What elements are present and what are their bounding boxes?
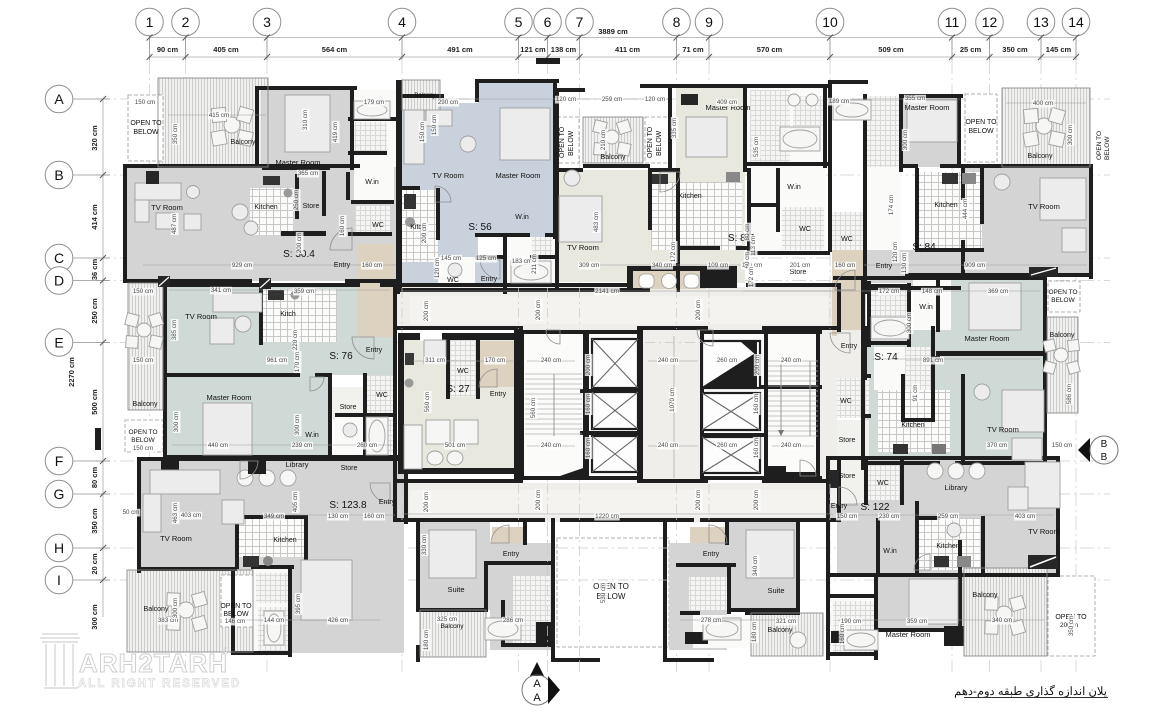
svg-text:240 cm: 240 cm — [658, 357, 678, 364]
svg-text:Store: Store — [303, 203, 320, 210]
svg-text:259 cm: 259 cm — [602, 96, 622, 103]
svg-text:4: 4 — [398, 14, 406, 30]
svg-text:179 cm: 179 cm — [364, 99, 384, 106]
svg-text:160 cm: 160 cm — [839, 624, 846, 644]
svg-text:TV Room: TV Room — [567, 243, 599, 252]
svg-text:WC: WC — [877, 480, 889, 487]
svg-text:146 cm: 146 cm — [225, 618, 245, 625]
svg-text:TV Room: TV Room — [1028, 527, 1060, 536]
svg-text:400 cm: 400 cm — [1033, 100, 1053, 107]
svg-text:200 cm: 200 cm — [535, 490, 542, 510]
svg-text:250 cm: 250 cm — [293, 190, 300, 210]
svg-text:Kitchen: Kitchen — [678, 193, 701, 200]
svg-text:TV Room: TV Room — [151, 203, 183, 212]
svg-text:Balcony: Balcony — [601, 154, 626, 161]
svg-text:170 cm: 170 cm — [294, 352, 301, 372]
svg-text:TV Room: TV Room — [1028, 202, 1060, 211]
svg-text:160 cm: 160 cm — [753, 394, 760, 414]
svg-text:174 cm: 174 cm — [888, 195, 895, 215]
svg-text:OPEN TO: OPEN TO — [1096, 131, 1103, 160]
svg-text:Master Room: Master Room — [275, 158, 320, 167]
svg-text:71 cm: 71 cm — [682, 45, 704, 54]
svg-text:6: 6 — [544, 14, 552, 30]
svg-text:350 cm: 350 cm — [1002, 45, 1028, 54]
svg-text:©: © — [222, 646, 230, 657]
svg-text:11: 11 — [945, 14, 960, 30]
svg-text:290 cm: 290 cm — [438, 99, 458, 106]
svg-text:300 cm: 300 cm — [173, 412, 180, 432]
svg-text:Store: Store — [839, 473, 856, 480]
svg-text:501 cm: 501 cm — [445, 442, 465, 449]
svg-text:3: 3 — [263, 14, 271, 30]
svg-text:F: F — [55, 453, 64, 469]
svg-text:172 cm: 172 cm — [748, 267, 755, 287]
svg-text:BELOW: BELOW — [568, 130, 575, 156]
svg-text:172 cm: 172 cm — [879, 288, 899, 295]
svg-text:535 cm: 535 cm — [753, 137, 760, 157]
svg-text:Kitchen: Kitchen — [254, 204, 277, 211]
svg-text:12: 12 — [982, 14, 998, 30]
svg-text:300 cm: 300 cm — [1067, 125, 1074, 145]
svg-text:Balcony: Balcony — [1050, 332, 1075, 339]
svg-text:180 cm: 180 cm — [751, 622, 758, 642]
svg-text:200 cm: 200 cm — [421, 223, 428, 243]
svg-text:50 cm: 50 cm — [123, 509, 140, 516]
svg-text:200 cm: 200 cm — [296, 233, 303, 253]
svg-text:Entry: Entry — [703, 551, 720, 558]
svg-text:411 cm: 411 cm — [615, 45, 640, 54]
svg-text:Suite: Suite — [767, 586, 784, 595]
svg-text:350 cm: 350 cm — [90, 508, 99, 534]
svg-text:S: 76: S: 76 — [329, 351, 353, 362]
svg-text:20 cm: 20 cm — [90, 553, 99, 575]
svg-text:426 cm: 426 cm — [328, 617, 348, 624]
svg-text:564 cm: 564 cm — [322, 45, 348, 54]
svg-text:H: H — [54, 540, 64, 556]
svg-text:560 cm: 560 cm — [530, 398, 537, 418]
svg-text:25 cm: 25 cm — [960, 45, 982, 54]
svg-text:W.in: W.in — [365, 179, 379, 186]
svg-text:145 cm: 145 cm — [1046, 45, 1072, 54]
svg-text:560 cm: 560 cm — [424, 392, 431, 412]
svg-text:309 cm: 309 cm — [579, 262, 599, 269]
svg-text:Balcony: Balcony — [973, 592, 998, 599]
svg-text:Master Room: Master Room — [964, 334, 1009, 343]
svg-text:B: B — [1101, 439, 1108, 450]
svg-text:Balcony: Balcony — [1028, 153, 1053, 160]
svg-text:1220 cm: 1220 cm — [595, 513, 619, 520]
svg-text:14: 14 — [1068, 14, 1084, 30]
svg-text:500 cm: 500 cm — [90, 389, 99, 415]
svg-text:300 cm: 300 cm — [294, 415, 301, 435]
svg-text:929 cm: 929 cm — [232, 262, 252, 269]
svg-text:230 cm: 230 cm — [879, 513, 899, 520]
svg-text:2141 cm: 2141 cm — [595, 288, 619, 295]
svg-text:570 cm: 570 cm — [757, 45, 783, 54]
svg-text:S: 123.8: S: 123.8 — [329, 500, 367, 511]
svg-text:Kitchen: Kitchen — [273, 537, 296, 544]
svg-text:369 cm: 369 cm — [988, 288, 1008, 295]
svg-text:Entry: Entry — [481, 276, 498, 283]
svg-text:405 cm: 405 cm — [213, 45, 239, 54]
svg-text:ALL RIGHT RESERVED: ALL RIGHT RESERVED — [78, 678, 241, 690]
svg-text:WC: WC — [372, 222, 384, 229]
svg-text:Master Room: Master Room — [495, 171, 540, 180]
svg-text:340 cm: 340 cm — [992, 617, 1012, 624]
svg-text:TV Room: TV Room — [160, 534, 192, 543]
svg-text:1: 1 — [146, 14, 154, 30]
svg-text:I: I — [57, 572, 61, 588]
svg-text:G: G — [54, 486, 65, 502]
svg-text:463 cm: 463 cm — [172, 503, 179, 523]
svg-text:90 cm: 90 cm — [157, 45, 179, 54]
svg-text:370 cm: 370 cm — [987, 442, 1007, 449]
svg-text:W.in: W.in — [919, 304, 933, 311]
svg-text:S: 84: S: 84 — [912, 242, 936, 253]
svg-text:TV Room: TV Room — [185, 312, 217, 321]
svg-text:909 cm: 909 cm — [965, 262, 985, 269]
svg-text:S: 74: S: 74 — [874, 352, 898, 363]
svg-text:150 cm: 150 cm — [133, 288, 153, 295]
svg-text:150 cm: 150 cm — [431, 115, 438, 135]
svg-text:TV Room: TV Room — [432, 171, 464, 180]
svg-text:9: 9 — [705, 14, 713, 30]
svg-text:200 cm: 200 cm — [423, 492, 430, 512]
svg-text:148 cm: 148 cm — [922, 288, 942, 295]
svg-text:180 cm: 180 cm — [423, 630, 430, 650]
svg-text:240 cm: 240 cm — [781, 357, 801, 364]
svg-text:36 cm: 36 cm — [90, 259, 99, 281]
svg-text:240 cm: 240 cm — [541, 442, 561, 449]
svg-text:BELOW: BELOW — [223, 611, 249, 618]
svg-text:240 cm: 240 cm — [781, 442, 801, 449]
svg-text:150 cm: 150 cm — [419, 122, 426, 142]
svg-text:109 cm: 109 cm — [708, 262, 728, 269]
svg-text:300 cm: 300 cm — [90, 604, 99, 630]
svg-text:340 cm: 340 cm — [752, 556, 759, 576]
svg-text:Entry: Entry — [841, 343, 858, 350]
svg-text:150 cm: 150 cm — [135, 99, 155, 106]
svg-text:172 cm: 172 cm — [670, 242, 677, 262]
svg-text:3889 cm: 3889 cm — [598, 27, 628, 36]
svg-text:320 cm: 320 cm — [90, 125, 99, 151]
svg-text:BELOW: BELOW — [131, 437, 155, 444]
svg-text:130 cm: 130 cm — [328, 513, 348, 520]
svg-text:C: C — [54, 250, 64, 266]
svg-text:Kitch: Kitch — [280, 311, 296, 318]
svg-text:321 cm: 321 cm — [776, 618, 796, 625]
svg-text:200 cm: 200 cm — [695, 300, 702, 320]
svg-text:Entry: Entry — [831, 503, 848, 510]
svg-text:Entry: Entry — [876, 263, 893, 270]
svg-text:OPEN TO: OPEN TO — [130, 120, 162, 127]
svg-text:409 cm: 409 cm — [717, 99, 737, 106]
svg-text:Entry: Entry — [366, 347, 383, 354]
svg-text:113 cm: 113 cm — [750, 236, 757, 256]
svg-text:891 cm: 891 cm — [923, 357, 943, 364]
svg-text:150 cm: 150 cm — [837, 513, 857, 520]
svg-text:160 cm: 160 cm — [585, 438, 592, 458]
svg-text:Balcony: Balcony — [231, 139, 256, 146]
svg-text:341 cm: 341 cm — [211, 287, 231, 294]
svg-text:Library: Library — [286, 460, 309, 469]
svg-text:E: E — [54, 335, 63, 351]
svg-text:WC: WC — [376, 392, 388, 399]
svg-text:Balcony: Balcony — [144, 606, 169, 613]
svg-text:160 cm: 160 cm — [364, 513, 384, 520]
svg-text:145 cm: 145 cm — [441, 255, 461, 262]
svg-text:WC: WC — [799, 226, 811, 233]
svg-text:349 cm: 349 cm — [264, 513, 284, 520]
svg-text:260 cm: 260 cm — [357, 442, 377, 449]
svg-text:200 cm: 200 cm — [754, 355, 761, 375]
svg-text:350 cm: 350 cm — [172, 124, 179, 144]
svg-text:OPEN TO: OPEN TO — [128, 429, 157, 436]
svg-text:W.in: W.in — [515, 214, 529, 221]
svg-text:Master Room: Master Room — [206, 393, 251, 402]
svg-text:160 cm: 160 cm — [339, 216, 346, 236]
svg-text:259 cm: 259 cm — [938, 513, 958, 520]
svg-text:2: 2 — [182, 14, 190, 30]
svg-text:120 cm: 120 cm — [556, 96, 576, 103]
svg-text:210 cm: 210 cm — [600, 130, 607, 150]
svg-text:355 cm: 355 cm — [905, 95, 925, 102]
svg-text:211 cm: 211 cm — [531, 254, 538, 274]
svg-text:239 cm: 239 cm — [292, 442, 312, 449]
svg-text:121 cm: 121 cm — [520, 45, 546, 54]
svg-text:125 cm: 125 cm — [476, 255, 496, 262]
svg-text:286 cm: 286 cm — [503, 617, 523, 624]
svg-text:403 cm: 403 cm — [181, 512, 201, 519]
svg-text:160 cm: 160 cm — [753, 438, 760, 458]
svg-text:200 cm: 200 cm — [585, 355, 592, 375]
svg-text:D: D — [54, 273, 64, 289]
svg-text:Entry: Entry — [379, 499, 396, 506]
svg-text:Entry: Entry — [334, 262, 351, 269]
svg-text:2270 cm: 2270 cm — [67, 357, 76, 387]
svg-text:W.in: W.in — [305, 432, 319, 439]
svg-text:335 cm: 335 cm — [671, 118, 678, 138]
svg-text:10: 10 — [822, 14, 838, 30]
svg-text:961 cm: 961 cm — [267, 357, 287, 364]
svg-text:278 cm: 278 cm — [701, 617, 721, 624]
svg-text:WC: WC — [447, 277, 459, 284]
svg-text:240 cm: 240 cm — [541, 357, 561, 364]
svg-text:120 cm: 120 cm — [645, 96, 665, 103]
svg-text:Entry: Entry — [503, 551, 520, 558]
svg-text:OPEN TO: OPEN TO — [559, 126, 566, 158]
svg-text:91 cm: 91 cm — [912, 385, 919, 402]
svg-text:BELOW: BELOW — [1104, 136, 1111, 160]
svg-text:150 cm: 150 cm — [1052, 442, 1072, 449]
svg-text:BELOW: BELOW — [133, 129, 159, 136]
svg-text:WC: WC — [841, 236, 853, 243]
svg-text:S: 122: S: 122 — [861, 502, 890, 513]
svg-text:S: 27: S: 27 — [446, 384, 470, 395]
svg-text:150 cm: 150 cm — [133, 445, 153, 452]
svg-text:509 cm: 509 cm — [878, 45, 904, 54]
svg-text:Store: Store — [839, 437, 856, 444]
svg-text:260 cm: 260 cm — [717, 442, 737, 449]
svg-text:419 cm: 419 cm — [332, 122, 339, 142]
svg-text:W.in: W.in — [883, 548, 897, 555]
svg-text:130 cm: 130 cm — [901, 253, 908, 273]
svg-text:WC: WC — [840, 398, 852, 405]
svg-text:W.in: W.in — [787, 184, 801, 191]
svg-text:OPEN TO: OPEN TO — [593, 582, 629, 591]
svg-text:Balcony: Balcony — [414, 93, 435, 99]
svg-text:189 cm: 189 cm — [829, 98, 849, 105]
svg-text:TV Room: TV Room — [987, 425, 1019, 434]
svg-text:B: B — [1101, 452, 1108, 463]
svg-text:201 cm: 201 cm — [790, 262, 810, 269]
svg-text:5: 5 — [515, 14, 523, 30]
svg-text:170 cm: 170 cm — [485, 357, 505, 364]
svg-text:160 cm: 160 cm — [585, 394, 592, 414]
svg-text:Store: Store — [790, 269, 807, 276]
svg-text:365 cm: 365 cm — [298, 170, 318, 177]
svg-text:A: A — [54, 91, 64, 107]
svg-text:Master Room: Master Room — [904, 103, 949, 112]
svg-text:325 cm: 325 cm — [437, 616, 457, 623]
svg-text:Library: Library — [945, 483, 968, 492]
svg-text:120 cm: 120 cm — [892, 242, 899, 262]
svg-text:120 cm: 120 cm — [434, 258, 441, 278]
svg-text:395 cm: 395 cm — [295, 594, 302, 614]
svg-text:183 cm: 183 cm — [512, 258, 532, 265]
svg-text:200 cm: 200 cm — [535, 300, 542, 320]
svg-text:پلان اندازه گذاری طبقه دوم-دهم: پلان اندازه گذاری طبقه دوم-دهم — [954, 684, 1107, 698]
svg-text:220 cm: 220 cm — [292, 330, 299, 350]
svg-text:200 cm: 200 cm — [423, 301, 430, 321]
svg-text:Balcony: Balcony — [133, 401, 158, 408]
svg-text:150 cm: 150 cm — [133, 357, 153, 364]
svg-text:A: A — [533, 678, 541, 690]
svg-text:ARH2TARH: ARH2TARH — [79, 648, 228, 678]
svg-text:310 cm: 310 cm — [302, 110, 309, 130]
svg-text:300 cm: 300 cm — [906, 313, 913, 333]
svg-text:Master Room: Master Room — [885, 630, 930, 639]
svg-text:Store: Store — [341, 465, 358, 472]
svg-text:B: B — [54, 167, 63, 183]
svg-text:487 cm: 487 cm — [171, 214, 178, 234]
svg-text:OPEN TO: OPEN TO — [1048, 289, 1077, 296]
svg-text:444 cm: 444 cm — [962, 199, 969, 219]
svg-text:200 cm: 200 cm — [695, 490, 702, 510]
svg-text:OPEN TO: OPEN TO — [220, 603, 252, 610]
svg-text:359 cm: 359 cm — [907, 618, 927, 625]
svg-text:Kitchen: Kitchen — [934, 202, 957, 209]
svg-text:311 cm: 311 cm — [425, 357, 445, 364]
svg-text:350 cm: 350 cm — [1068, 616, 1075, 636]
svg-text:Balcony: Balcony — [440, 623, 464, 630]
svg-text:200 cm: 200 cm — [753, 490, 760, 510]
svg-text:144 cm: 144 cm — [264, 617, 284, 624]
svg-text:300 cm: 300 cm — [902, 130, 909, 150]
svg-text:160 cm: 160 cm — [362, 262, 382, 269]
svg-text:80 cm: 80 cm — [90, 467, 99, 489]
svg-text:Entry: Entry — [490, 391, 507, 398]
svg-text:160 cm: 160 cm — [835, 262, 855, 269]
svg-text:483 cm: 483 cm — [593, 212, 600, 232]
svg-text:330 cm: 330 cm — [421, 535, 428, 555]
svg-text:A: A — [533, 692, 541, 704]
svg-text:OPEN TO: OPEN TO — [647, 126, 654, 158]
svg-text:BELOW: BELOW — [656, 130, 663, 156]
svg-text:OPEN TO: OPEN TO — [965, 119, 997, 126]
svg-text:BELOW: BELOW — [968, 128, 994, 135]
svg-text:7: 7 — [576, 14, 584, 30]
svg-text:385 cm: 385 cm — [171, 320, 178, 340]
svg-text:491 cm: 491 cm — [447, 45, 473, 54]
svg-text:Balcony: Balcony — [768, 627, 793, 634]
svg-text:BELOW: BELOW — [1051, 297, 1075, 304]
svg-text:586 cm: 586 cm — [1066, 384, 1073, 404]
svg-text:WC: WC — [457, 368, 469, 375]
svg-text:414 cm: 414 cm — [90, 204, 99, 230]
svg-text:260 cm: 260 cm — [717, 357, 737, 364]
svg-text:440 cm: 440 cm — [208, 442, 228, 449]
svg-text:405 cm: 405 cm — [292, 492, 299, 512]
svg-text:Suite: Suite — [447, 585, 464, 594]
svg-text:250 cm: 250 cm — [90, 298, 99, 324]
svg-text:13: 13 — [1033, 14, 1049, 30]
svg-text:240 cm: 240 cm — [658, 442, 678, 449]
svg-text:Kitchen: Kitchen — [901, 422, 924, 429]
svg-text:403 cm: 403 cm — [1015, 513, 1035, 520]
svg-text:8: 8 — [673, 14, 681, 30]
svg-text:S: 56: S: 56 — [468, 222, 492, 233]
svg-text:530 cm: 530 cm — [600, 583, 607, 603]
svg-text:300 cm: 300 cm — [172, 598, 179, 618]
svg-text:415 cm: 415 cm — [209, 112, 229, 119]
svg-text:1070 cm: 1070 cm — [669, 388, 676, 412]
svg-text:359 cm: 359 cm — [294, 288, 314, 295]
svg-text:Kitchen: Kitchen — [936, 543, 959, 550]
svg-text:138 cm: 138 cm — [551, 45, 577, 54]
svg-text:Store: Store — [340, 404, 357, 411]
